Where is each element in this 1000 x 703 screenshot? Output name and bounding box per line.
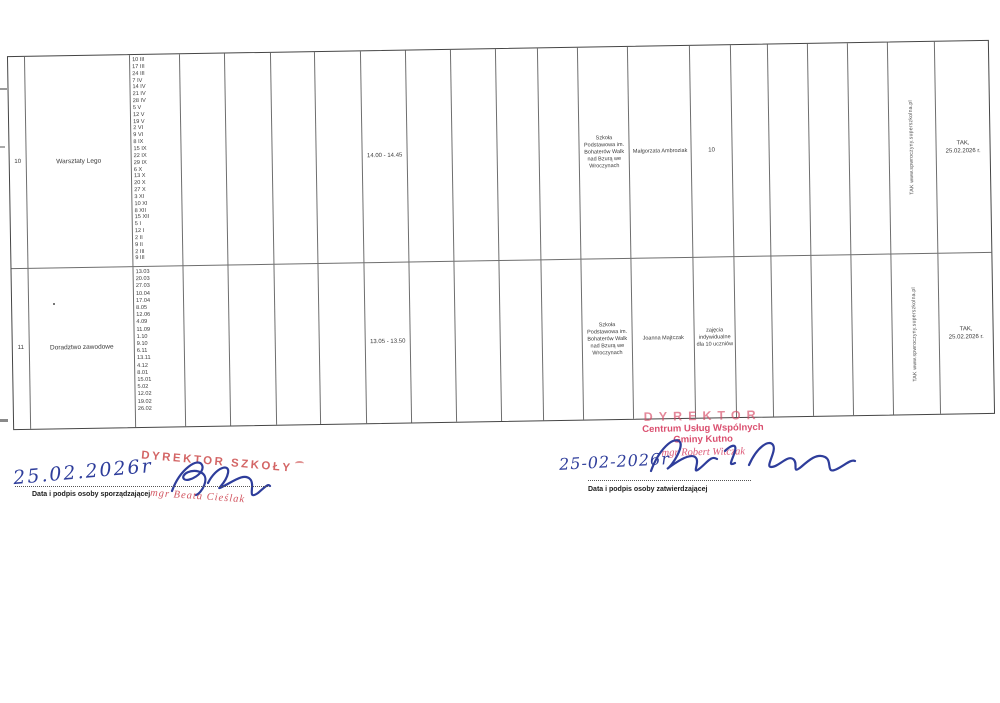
scanned-document-page: 10 Warsztaty Lego 10 III 17 III 24 III 7…	[0, 0, 1000, 703]
signature-dotted-line-left	[15, 486, 268, 487]
cell-row11-approval: TAK, 25.02.2026 r.	[938, 253, 994, 414]
cell-row11-dates: 13.03 20.03 27.03 10.04 17.04 8.05 12.06…	[133, 266, 186, 427]
cell-row10-approval: TAK, 25.02.2026 r.	[935, 41, 992, 254]
cell-empty	[808, 43, 852, 256]
cell-row11-school: Szkoła Podstawowa im. Bohaterów Walk nad…	[581, 259, 634, 420]
scan-artifact	[53, 303, 55, 305]
scan-artifact	[0, 146, 5, 148]
cell-empty	[811, 255, 854, 416]
cell-empty	[771, 256, 814, 417]
scan-artifact	[0, 419, 8, 422]
cell-empty	[409, 262, 457, 423]
cell-empty	[496, 48, 542, 261]
cell-row10-teacher: Małgorzata Ambroziak	[628, 46, 694, 259]
scan-artifact-red	[295, 461, 304, 466]
cell-empty	[851, 255, 894, 416]
cell-empty	[538, 48, 582, 261]
cell-empty	[734, 257, 774, 418]
cell-row10-school: Szkoła Podstawowa im. Bohaterów Walk nad…	[578, 47, 632, 260]
cell-row11-website: TAK www.spwroczyny.superszkolna.pl	[891, 254, 941, 415]
cell-row11-participants: zajęcia indywidualne dla 10 uczniów	[693, 257, 737, 418]
cell-empty	[315, 51, 365, 264]
cell-row10-time: 14.00 - 14.45	[361, 51, 410, 264]
cell-row10-participants: 10	[690, 45, 735, 258]
website-vertical-text: TAK www.spwroczyny.superszkolna.pl	[911, 287, 920, 382]
cell-empty	[225, 53, 275, 266]
cell-empty	[228, 265, 277, 426]
signature-label-left: Data i podpis osoby sporządzającej	[32, 491, 150, 498]
handwritten-date-left: 25.02.2026r	[12, 455, 153, 489]
signature-label-right: Data i podpis osoby zatwierdzającej	[588, 486, 707, 493]
cell-empty	[180, 54, 229, 267]
cell-row11-time: 13.05 - 13.50	[364, 263, 412, 424]
cell-row10-website: TAK www.spwroczyny.superszkolna.pl	[888, 42, 939, 255]
schedule-table: 10 Warsztaty Lego 10 III 17 III 24 III 7…	[7, 40, 995, 430]
cell-empty	[406, 50, 455, 263]
cell-empty	[499, 260, 544, 421]
cell-row10-dates: 10 III 17 III 24 III 7 IV 14 IV 21 IV 28…	[130, 54, 184, 267]
cell-empty	[768, 44, 812, 257]
cell-empty	[274, 264, 321, 425]
cell-empty	[271, 52, 319, 265]
cell-empty	[731, 45, 772, 258]
cell-empty	[454, 261, 502, 422]
cell-row11-teacher: Joanna Majtczak	[631, 258, 696, 419]
website-vertical-text: TAK www.spwroczyny.superszkolna.pl	[908, 100, 917, 195]
scan-artifact	[0, 88, 7, 90]
cell-empty	[451, 49, 500, 262]
cell-empty	[848, 43, 892, 256]
cell-empty	[318, 263, 367, 424]
cell-row10-activity: Warsztaty Lego	[25, 55, 134, 269]
signature-dotted-line-right	[588, 480, 751, 481]
cell-empty	[183, 266, 231, 427]
cell-empty	[541, 260, 584, 421]
cell-row11-activity: Doradztwo zawodowe	[28, 267, 136, 429]
signature-scribble-right	[645, 431, 860, 487]
